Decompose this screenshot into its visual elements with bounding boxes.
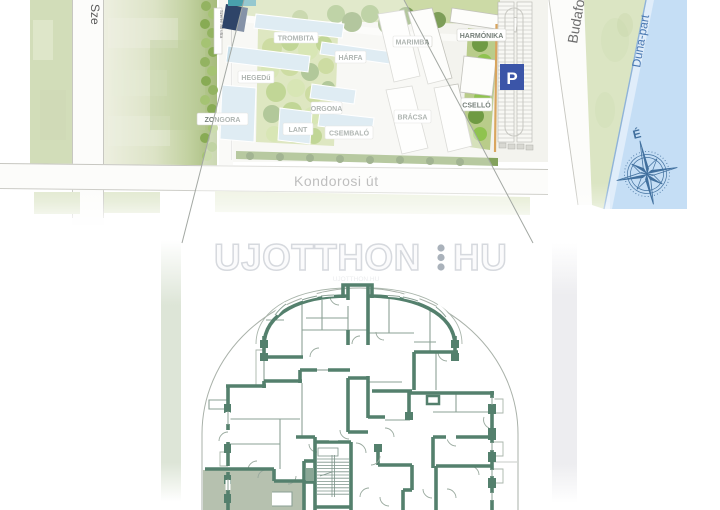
svg-text:HARMÓNIKA: HARMÓNIKA bbox=[460, 31, 504, 40]
svg-text:P: P bbox=[506, 69, 517, 88]
svg-text:UJOTTHON.HU: UJOTTHON.HU bbox=[333, 276, 380, 283]
svg-text:Sze: Sze bbox=[88, 4, 102, 25]
svg-text:CSELLÓ: CSELLÓ bbox=[462, 101, 491, 110]
svg-text:HU: HU bbox=[453, 237, 507, 278]
svg-text:UJOTTHON: UJOTTHON bbox=[214, 237, 421, 278]
